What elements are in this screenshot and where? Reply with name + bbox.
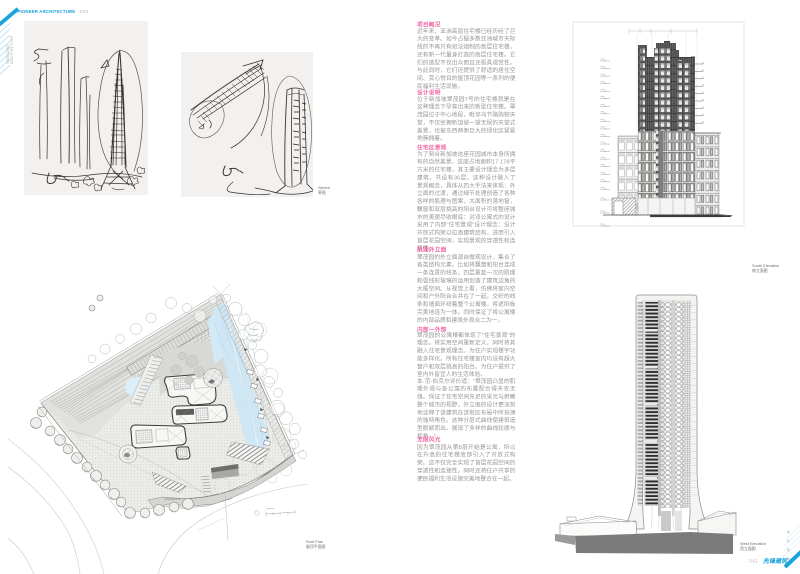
svg-text:标: 标 bbox=[787, 539, 790, 543]
svg-text:先锋建筑: 先锋建筑 bbox=[763, 557, 788, 565]
svg-text:建: 建 bbox=[787, 548, 790, 552]
svg-text:地: 地 bbox=[787, 530, 790, 534]
svg-text:筑: 筑 bbox=[787, 557, 790, 561]
